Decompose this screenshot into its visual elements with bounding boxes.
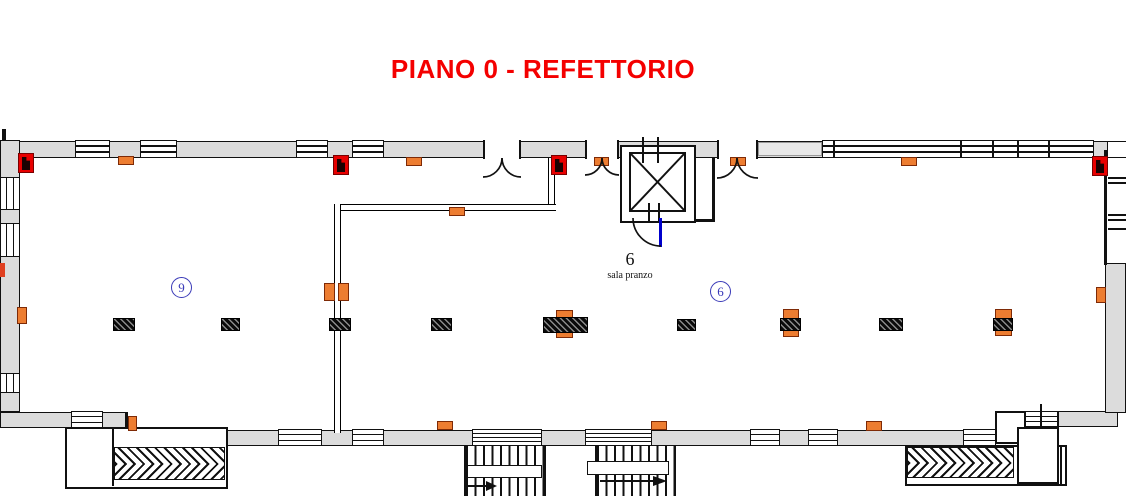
- page-title: PIANO 0 - REFETTORIO: [263, 54, 823, 85]
- window: [0, 373, 20, 393]
- hatched-floor-marker: [993, 318, 1013, 331]
- floorplan-canvas: PIANO 0 - REFETTORIO: [0, 0, 1126, 496]
- right-adjacent-wall-stub: [1108, 214, 1126, 216]
- window: [0, 177, 20, 210]
- window: [278, 429, 322, 446]
- niche-wall: [696, 219, 715, 222]
- hatched-floor-marker: [543, 317, 588, 333]
- bottom-wall-right: [1058, 411, 1118, 427]
- window: [140, 140, 177, 158]
- zone-badge-label: 6: [717, 284, 724, 300]
- mullion: [833, 141, 835, 157]
- window: [352, 140, 384, 158]
- elevator-door-tick: [642, 137, 644, 163]
- stair-handrail: [467, 465, 542, 478]
- right-wall-band: [1105, 263, 1126, 413]
- red-sensor-marker: [551, 155, 567, 175]
- orange-device-marker: [866, 421, 882, 431]
- mullion: [960, 141, 962, 157]
- hatched-floor-marker: [879, 318, 903, 331]
- bottom-wall-upper-left: [0, 412, 128, 428]
- stair-handrail: [587, 461, 669, 475]
- orange-device-marker: [118, 156, 134, 165]
- right-adjacent-wall-stub: [1108, 182, 1126, 184]
- window: [963, 429, 996, 446]
- hatched-floor-marker: [780, 318, 801, 331]
- ramp-hatch: [114, 447, 225, 480]
- window: [472, 429, 542, 446]
- zone-badge-9: 9: [171, 277, 192, 298]
- hatched-floor-marker: [329, 318, 351, 331]
- top-wall-right-extension: [1108, 141, 1126, 158]
- mullion: [992, 141, 994, 157]
- orange-device-marker: [594, 157, 609, 166]
- double-door-opening: [483, 140, 521, 159]
- wall-slab: [758, 142, 822, 156]
- orange-device-marker: [1096, 287, 1106, 303]
- ramp-hatch: [907, 447, 1014, 478]
- orange-device-marker: [651, 421, 667, 430]
- orange-device-marker: [128, 416, 137, 431]
- door-swing-arc: [502, 158, 521, 177]
- hatched-floor-marker: [431, 318, 452, 331]
- door-swing-arc: [483, 158, 502, 177]
- right-adjacent-wall-stub: [1108, 228, 1126, 230]
- orange-device-marker: [338, 283, 349, 301]
- elevator-door-tick: [657, 137, 659, 163]
- window: [296, 140, 328, 158]
- window: [585, 429, 652, 446]
- red-sensor-marker: [1092, 156, 1108, 176]
- red-sensor-marker: [333, 155, 349, 175]
- door-leaf-blue: [659, 218, 662, 247]
- ramp-landing: [1017, 427, 1059, 484]
- orange-device-marker: [17, 307, 27, 324]
- window: [0, 223, 20, 257]
- window: [71, 411, 103, 428]
- edge-marker: [0, 263, 5, 277]
- room-number: 6: [600, 249, 660, 270]
- right-adjacent-wall-stub: [1108, 177, 1126, 179]
- orange-device-marker: [324, 283, 335, 301]
- window: [808, 429, 838, 446]
- niche-wall: [712, 158, 715, 221]
- hatched-floor-marker: [677, 319, 696, 331]
- room-name: sala pranzo: [585, 270, 675, 281]
- glazed-band: [822, 140, 1094, 158]
- hatched-floor-marker: [221, 318, 240, 331]
- red-sensor-marker: [18, 153, 34, 173]
- orange-device-marker: [406, 157, 422, 166]
- right-adjacent-wall-stub: [1108, 219, 1126, 221]
- orange-device-marker: [901, 157, 917, 166]
- mullion: [1048, 141, 1050, 157]
- orange-device-marker: [437, 421, 453, 430]
- orange-device-marker: [730, 157, 746, 166]
- zone-badge-6: 6: [710, 281, 731, 302]
- zone-badge-label: 9: [178, 280, 185, 296]
- mullion: [1017, 141, 1019, 157]
- window: [352, 429, 384, 446]
- window: [75, 140, 110, 158]
- ramp-edge-line: [1060, 447, 1062, 484]
- window: [750, 429, 780, 446]
- elevator-door-tick: [648, 203, 650, 222]
- partition-wall: [337, 204, 556, 211]
- orange-device-marker: [449, 207, 465, 216]
- bottom-wall-main: [126, 430, 965, 446]
- hatched-floor-marker: [113, 318, 135, 331]
